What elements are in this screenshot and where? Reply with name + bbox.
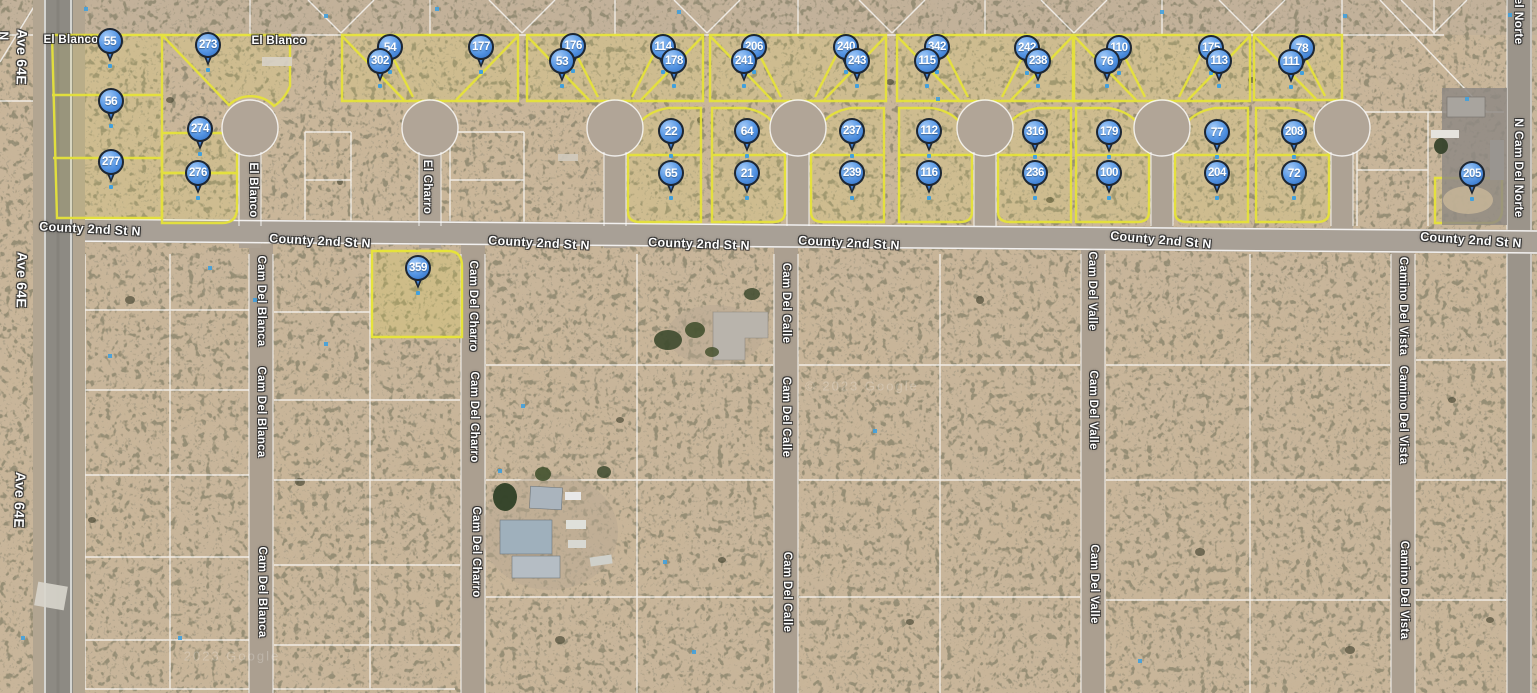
map-pin-243[interactable]: 243 (844, 48, 870, 90)
pin-label: 56 (98, 88, 124, 114)
map-pin-64[interactable]: 64 (734, 118, 760, 160)
map-pin-53[interactable]: 53 (549, 48, 575, 90)
survey-dot (560, 84, 564, 88)
survey-dot (108, 64, 112, 68)
survey-dot (1289, 85, 1293, 89)
map-pins-layer: 5527317654177114206240342242110175783025… (0, 0, 1537, 693)
survey-dot (196, 196, 200, 200)
map-pin-274[interactable]: 274 (187, 116, 213, 158)
survey-dot (198, 152, 202, 156)
map-pin-76[interactable]: 76 (1094, 48, 1120, 90)
map-pin-241[interactable]: 241 (731, 48, 757, 90)
survey-dot (850, 196, 854, 200)
pin-label: 208 (1281, 119, 1307, 145)
map-pin-277[interactable]: 277 (98, 149, 124, 191)
survey-dot (1292, 196, 1296, 200)
survey-dot (1033, 196, 1037, 200)
survey-dot (378, 84, 382, 88)
map-pin-111[interactable]: 111 (1278, 49, 1304, 91)
pin-label: 273 (195, 32, 221, 58)
pin-label: 112 (916, 118, 942, 144)
pin-label: 65 (658, 160, 684, 186)
map-pin-56[interactable]: 56 (98, 88, 124, 130)
pin-label: 243 (844, 48, 870, 74)
map-pin-116[interactable]: 116 (916, 160, 942, 202)
map-pin-205[interactable]: 205 (1459, 161, 1485, 203)
pin-label: 115 (914, 48, 940, 74)
survey-dot (927, 154, 931, 158)
pin-label: 237 (839, 118, 865, 144)
map-pin-237[interactable]: 237 (839, 118, 865, 160)
map-pin-273[interactable]: 273 (195, 32, 221, 74)
map-pin-238[interactable]: 238 (1025, 48, 1051, 90)
pin-label: 64 (734, 118, 760, 144)
survey-dot (925, 84, 929, 88)
pin-label: 274 (187, 116, 213, 142)
survey-dot (850, 154, 854, 158)
survey-dot (1470, 197, 1474, 201)
pin-label: 76 (1094, 48, 1120, 74)
map-pin-179[interactable]: 179 (1096, 119, 1122, 161)
map-pin-72[interactable]: 72 (1281, 160, 1307, 202)
survey-dot (927, 196, 931, 200)
survey-dot (669, 196, 673, 200)
pin-label: 276 (185, 160, 211, 186)
survey-dot (745, 154, 749, 158)
survey-dot (672, 84, 676, 88)
pin-label: 53 (549, 48, 575, 74)
survey-dot (1215, 196, 1219, 200)
pin-label: 239 (839, 160, 865, 186)
survey-dot (1292, 155, 1296, 159)
pin-label: 77 (1204, 119, 1230, 145)
map-pin-276[interactable]: 276 (185, 160, 211, 202)
survey-dot (1217, 84, 1221, 88)
map-pin-112[interactable]: 112 (916, 118, 942, 160)
survey-dot (742, 84, 746, 88)
pin-label: 113 (1206, 48, 1232, 74)
map-pin-208[interactable]: 208 (1281, 119, 1307, 161)
pin-label: 236 (1022, 160, 1048, 186)
pin-label: 241 (731, 48, 757, 74)
survey-dot (1033, 155, 1037, 159)
map-pin-21[interactable]: 21 (734, 160, 760, 202)
map-pin-359[interactable]: 359 (405, 255, 431, 297)
pin-label: 238 (1025, 48, 1051, 74)
survey-dot (206, 68, 210, 72)
pin-label: 277 (98, 149, 124, 175)
survey-dot (109, 185, 113, 189)
satellite-map[interactable]: El BlancoEl BlancoCounty 2nd St NCounty … (0, 0, 1537, 693)
pin-label: 177 (468, 34, 494, 60)
pin-label: 302 (367, 48, 393, 74)
pin-label: 205 (1459, 161, 1485, 187)
pin-label: 111 (1278, 49, 1304, 75)
survey-dot (1107, 155, 1111, 159)
survey-dot (1105, 84, 1109, 88)
pin-label: 316 (1022, 119, 1048, 145)
survey-dot (416, 291, 420, 295)
pin-label: 178 (661, 48, 687, 74)
map-pin-178[interactable]: 178 (661, 48, 687, 90)
pin-label: 179 (1096, 119, 1122, 145)
pin-label: 22 (658, 118, 684, 144)
survey-dot (1107, 196, 1111, 200)
map-pin-113[interactable]: 113 (1206, 48, 1232, 90)
map-pin-302[interactable]: 302 (367, 48, 393, 90)
pin-label: 116 (916, 160, 942, 186)
map-pin-316[interactable]: 316 (1022, 119, 1048, 161)
pin-label: 55 (97, 28, 123, 54)
map-pin-177[interactable]: 177 (468, 34, 494, 76)
map-pin-22[interactable]: 22 (658, 118, 684, 160)
map-pin-115[interactable]: 115 (914, 48, 940, 90)
map-pin-236[interactable]: 236 (1022, 160, 1048, 202)
pin-label: 100 (1096, 160, 1122, 186)
survey-dot (745, 196, 749, 200)
map-pin-77[interactable]: 77 (1204, 119, 1230, 161)
survey-dot (1036, 84, 1040, 88)
pin-label: 21 (734, 160, 760, 186)
survey-dot (669, 154, 673, 158)
map-pin-55[interactable]: 55 (97, 28, 123, 70)
map-pin-65[interactable]: 65 (658, 160, 684, 202)
survey-dot (1215, 155, 1219, 159)
pin-label: 359 (405, 255, 431, 281)
map-pin-204[interactable]: 204 (1204, 160, 1230, 202)
pin-label: 72 (1281, 160, 1307, 186)
survey-dot (109, 124, 113, 128)
pin-label: 204 (1204, 160, 1230, 186)
survey-dot (479, 70, 483, 74)
map-pin-239[interactable]: 239 (839, 160, 865, 202)
map-pin-100[interactable]: 100 (1096, 160, 1122, 202)
survey-dot (855, 84, 859, 88)
